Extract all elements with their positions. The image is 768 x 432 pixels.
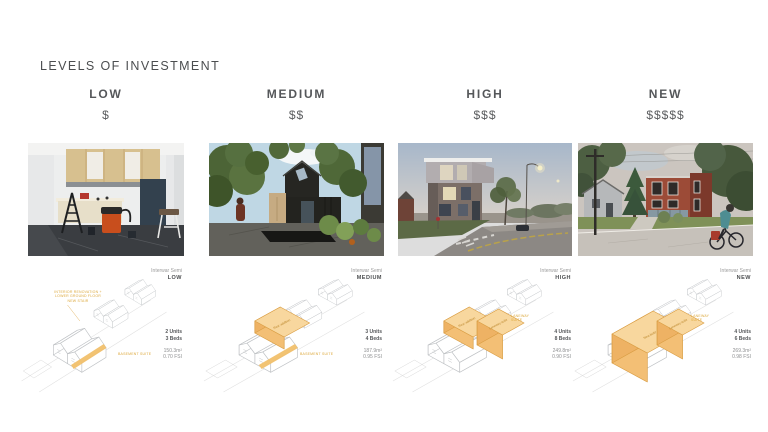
annotation-laneway-suite: Laneway suite	[691, 314, 719, 323]
diagram-level-label: HIGH	[540, 275, 571, 282]
diagram-label: Interwar Semi NEW	[720, 268, 751, 282]
photo-medium-garden-house	[209, 143, 384, 256]
axon-drawing-new: New build Laneway suite	[569, 263, 755, 393]
new-build-photo-illustration	[578, 143, 753, 256]
diagram-type-label: Interwar Semi	[151, 268, 182, 274]
stats-beds: 4 Beds	[363, 336, 382, 343]
garden-house-photo-illustration	[209, 143, 384, 256]
diagram-level-label: LOW	[151, 275, 182, 282]
cost-label: $$$	[398, 108, 572, 122]
diagram-low: Interior renovation + lower ground floor…	[18, 263, 186, 393]
diagram-stats: 2 Units 3 Beds 150.3m² 0.70 FSI	[163, 329, 182, 361]
axon-drawing-medium: Rear addition	[200, 263, 386, 393]
diagram-type-label: Interwar Semi	[540, 268, 571, 274]
stats-units: 4 Units	[732, 329, 751, 336]
diagram-type-label: Interwar Semi	[720, 268, 751, 274]
stats-fsi: 0.98 FSI	[732, 354, 751, 361]
cost-label: $	[28, 108, 184, 122]
cost-label: $$	[209, 108, 384, 122]
annotation-laneway-suite: Laneway suite	[511, 314, 539, 323]
diagram-new: New build Laneway suite Laneway suite In…	[569, 263, 755, 393]
diagram-high: Rear addition Laneway suite Laneway suit…	[389, 263, 575, 393]
stats-beds: 3 Beds	[163, 336, 182, 343]
level-label: HIGH	[398, 87, 572, 101]
photo-new-build-render	[578, 143, 753, 256]
slide: LEVELS OF INVESTMENT LOW $ MEDIUM $$ HIG…	[0, 0, 768, 432]
stats-fsi: 0.95 FSI	[363, 354, 382, 361]
photo-low-interior-renovation	[28, 143, 184, 256]
diagram-label: Interwar Semi HIGH	[540, 268, 571, 282]
column-header-medium: MEDIUM $$	[209, 87, 384, 122]
column-header-low: LOW $	[28, 87, 184, 122]
diagram-label: Interwar Semi LOW	[151, 268, 182, 282]
diagram-label: Interwar Semi MEDIUM	[351, 268, 382, 282]
stats-area: 150.3m²	[163, 348, 182, 355]
stats-area: 187.9m²	[363, 348, 382, 355]
diagram-stats: 4 Units 6 Beds 269.3m² 0.98 FSI	[732, 329, 751, 361]
diagram-level-label: MEDIUM	[351, 275, 382, 282]
axon-drawing-low	[18, 263, 186, 393]
annotation-basement-suite: Basement suite	[118, 352, 152, 356]
diagram-medium: Rear addition Basement suite Interwar Se…	[200, 263, 386, 393]
photo-high-street-corner	[398, 143, 572, 256]
annotation-interior-renovation: Interior renovation + lower ground floor…	[52, 290, 104, 303]
interior-photo-illustration	[28, 143, 184, 256]
level-label: NEW	[578, 87, 753, 101]
page-title: LEVELS OF INVESTMENT	[40, 59, 220, 73]
annotation-basement-suite: Basement suite	[300, 352, 334, 356]
stats-beds: 6 Beds	[732, 336, 751, 343]
stats-fsi: 0.70 FSI	[163, 354, 182, 361]
cost-label: $$$$$	[578, 108, 753, 122]
axon-drawing-high: Rear addition Laneway suite	[389, 263, 575, 393]
level-label: LOW	[28, 87, 184, 101]
stats-units: 3 Units	[363, 329, 382, 336]
diagram-type-label: Interwar Semi	[351, 268, 382, 274]
level-label: MEDIUM	[209, 87, 384, 101]
stats-units: 2 Units	[163, 329, 182, 336]
column-header-new: NEW $$$$$	[578, 87, 753, 122]
diagram-level-label: NEW	[720, 275, 751, 282]
diagram-stats: 3 Units 4 Beds 187.9m² 0.95 FSI	[363, 329, 382, 361]
street-corner-photo-illustration	[398, 143, 572, 256]
stats-area: 269.3m²	[732, 348, 751, 355]
column-header-high: HIGH $$$	[398, 87, 572, 122]
